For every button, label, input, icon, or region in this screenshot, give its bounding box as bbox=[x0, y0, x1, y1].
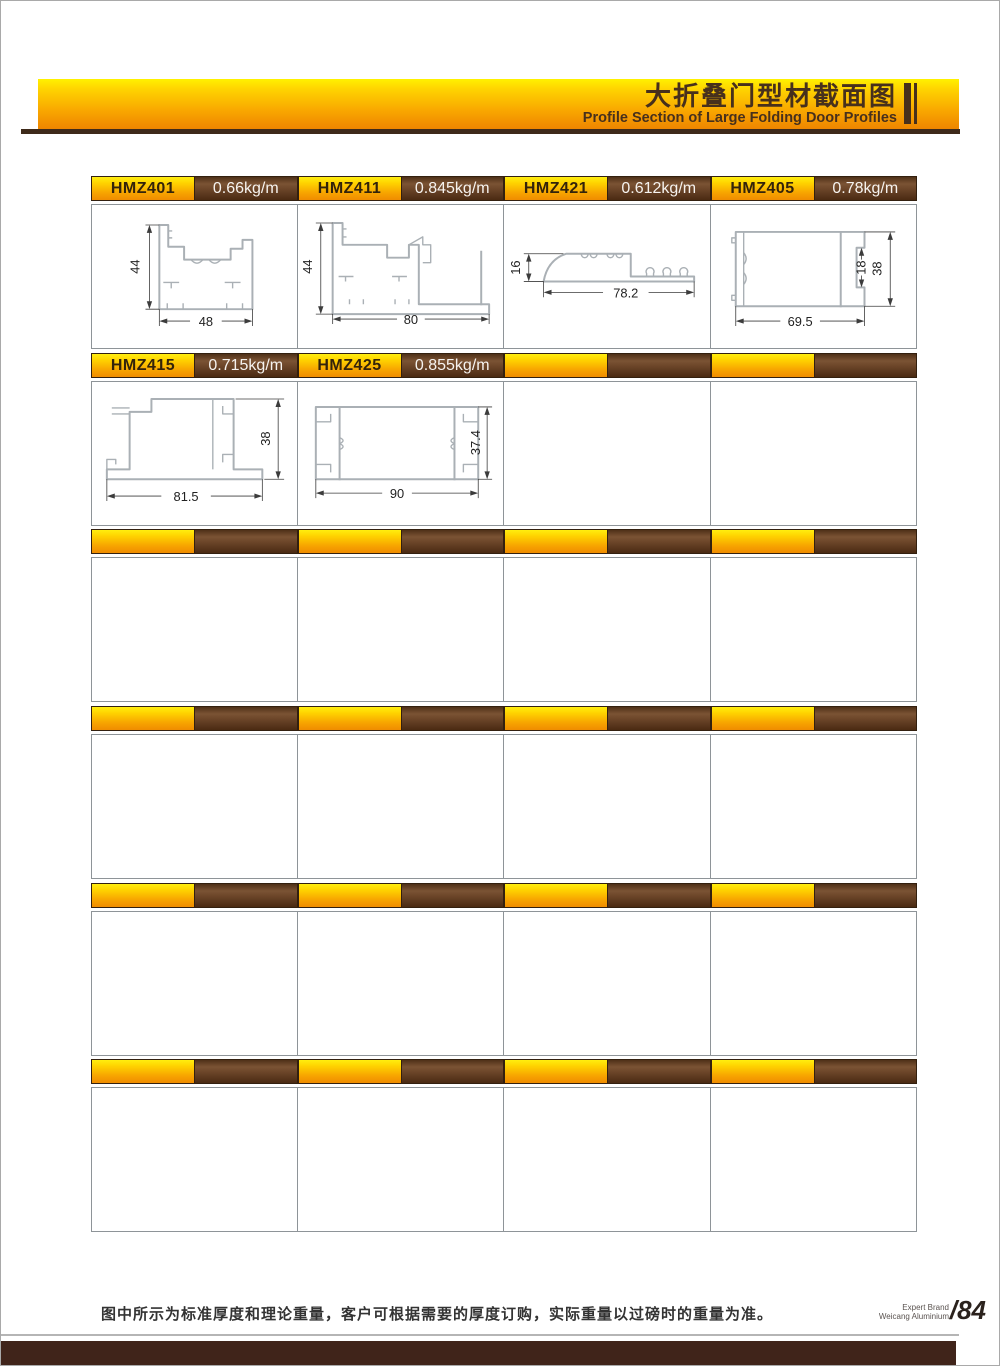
empty-gold-block bbox=[711, 353, 814, 378]
empty-label-cell bbox=[91, 883, 298, 908]
empty-gold-block bbox=[504, 883, 607, 908]
empty-gold-block bbox=[711, 529, 814, 554]
model-badge: HMZ411 bbox=[298, 176, 401, 201]
dim-width: 78.2 bbox=[613, 285, 638, 300]
profile-label-hmz421: HMZ421 0.612kg/m bbox=[504, 176, 711, 201]
empty-cell bbox=[504, 557, 711, 702]
empty-label-cell bbox=[504, 353, 711, 378]
weight-badge: 0.78kg/m bbox=[814, 176, 918, 201]
empty-label-cell bbox=[298, 706, 505, 731]
header-titles: 大折叠门型材截面图 Profile Section of Large Foldi… bbox=[583, 82, 897, 127]
dim-width: 48 bbox=[199, 314, 213, 329]
dim-width: 81.5 bbox=[174, 489, 199, 504]
empty-gold-block bbox=[91, 1059, 194, 1084]
empty-label-cell bbox=[711, 706, 918, 731]
empty-label-cell bbox=[711, 529, 918, 554]
weight-badge: 0.66kg/m bbox=[194, 176, 298, 201]
empty-cell bbox=[504, 381, 711, 526]
dim-slot: 18 bbox=[853, 260, 868, 274]
weight-badge: 0.715kg/m bbox=[194, 353, 298, 378]
model-badge: HMZ415 bbox=[91, 353, 194, 378]
model-badge: HMZ405 bbox=[711, 176, 814, 201]
model-badge: HMZ425 bbox=[298, 353, 401, 378]
empty-gold-block bbox=[298, 883, 401, 908]
empty-gold-block bbox=[711, 1059, 814, 1084]
empty-cell bbox=[298, 911, 505, 1056]
empty-brown-block bbox=[607, 883, 711, 908]
empty-gold-block bbox=[91, 529, 194, 554]
empty-label-cell bbox=[504, 883, 711, 908]
weight-badge: 0.855kg/m bbox=[401, 353, 505, 378]
footer-note: 图中所示为标准厚度和理论重量，客户可根据需要的厚度订购，实际重量以过磅时的重量为… bbox=[101, 1303, 773, 1324]
divider-bar bbox=[91, 706, 917, 731]
empty-label-cell bbox=[91, 529, 298, 554]
empty-label-cell bbox=[711, 1059, 918, 1084]
header-underline bbox=[21, 129, 960, 134]
header-accent-bar-thin bbox=[914, 83, 917, 124]
empty-cell bbox=[711, 381, 918, 526]
profile-drawing-hmz401: 44 48 bbox=[91, 204, 298, 349]
footer-bar bbox=[1, 1341, 956, 1365]
empty-gold-block bbox=[504, 529, 607, 554]
empty-cell bbox=[91, 911, 298, 1056]
empty-cell bbox=[711, 734, 918, 879]
empty-cell bbox=[298, 734, 505, 879]
footer-rule bbox=[1, 1334, 959, 1336]
profile-label-hmz415: HMZ415 0.715kg/m bbox=[91, 353, 298, 378]
empty-cell bbox=[298, 1087, 505, 1232]
empty-label-cell bbox=[504, 1059, 711, 1084]
empty-cell bbox=[711, 1087, 918, 1232]
divider-bar bbox=[91, 529, 917, 554]
empty-row bbox=[91, 734, 917, 879]
empty-brown-block bbox=[814, 353, 918, 378]
empty-brown-block bbox=[814, 1059, 918, 1084]
model-badge: HMZ401 bbox=[91, 176, 194, 201]
page-number: /84 bbox=[950, 1295, 986, 1326]
empty-brown-block bbox=[194, 706, 298, 731]
profile-drawing-hmz405: 18 38 69.5 bbox=[711, 204, 918, 349]
empty-brown-block bbox=[194, 529, 298, 554]
empty-label-cell bbox=[504, 706, 711, 731]
empty-brown-block bbox=[814, 706, 918, 731]
dim-height: 37.4 bbox=[468, 430, 483, 455]
profile-drawing-hmz421: 16 78.2 bbox=[504, 204, 711, 349]
dim-height: 44 bbox=[128, 259, 143, 273]
empty-gold-block bbox=[298, 1059, 401, 1084]
empty-brown-block bbox=[607, 706, 711, 731]
empty-brown-block bbox=[401, 883, 505, 908]
dim-height: 44 bbox=[299, 259, 314, 273]
empty-cell bbox=[91, 557, 298, 702]
label-row-2: HMZ415 0.715kg/m HMZ425 0.855kg/m bbox=[91, 353, 917, 378]
empty-cell bbox=[91, 1087, 298, 1232]
empty-label-cell bbox=[711, 883, 918, 908]
page-title: 大折叠门型材截面图 bbox=[583, 82, 897, 110]
drawing-row-1: 44 48 44 80 bbox=[91, 204, 917, 349]
empty-row bbox=[91, 1087, 917, 1232]
empty-brown-block bbox=[607, 529, 711, 554]
empty-gold-block bbox=[91, 706, 194, 731]
brand-line-1: Expert Brand bbox=[879, 1303, 949, 1312]
divider-bar bbox=[91, 1059, 917, 1084]
weight-badge: 0.845kg/m bbox=[401, 176, 505, 201]
empty-label-cell bbox=[298, 529, 505, 554]
section-drawing: 44 48 bbox=[92, 205, 296, 348]
section-drawing: 16 78.2 bbox=[504, 205, 708, 348]
empty-row bbox=[91, 911, 917, 1056]
dim-height: 38 bbox=[258, 431, 273, 445]
empty-cell bbox=[91, 734, 298, 879]
page-header: 大折叠门型材截面图 Profile Section of Large Foldi… bbox=[38, 79, 959, 129]
dim-width: 80 bbox=[403, 312, 417, 327]
empty-cell bbox=[711, 911, 918, 1056]
empty-brown-block bbox=[401, 529, 505, 554]
profile-drawing-hmz411: 44 80 bbox=[298, 204, 505, 349]
empty-brown-block bbox=[814, 883, 918, 908]
profile-label-hmz425: HMZ425 0.855kg/m bbox=[298, 353, 505, 378]
empty-gold-block bbox=[298, 529, 401, 554]
empty-gold-block bbox=[711, 883, 814, 908]
empty-label-cell bbox=[91, 1059, 298, 1084]
dim-height: 16 bbox=[508, 260, 523, 274]
brand-lines: Expert Brand Weicang Aluminium bbox=[879, 1303, 949, 1321]
empty-row bbox=[91, 557, 917, 702]
section-drawing: 37.4 90 bbox=[298, 382, 502, 525]
empty-brown-block bbox=[194, 1059, 298, 1084]
label-row-1: HMZ401 0.66kg/m HMZ411 0.845kg/m HMZ421 … bbox=[91, 176, 917, 201]
empty-gold-block bbox=[711, 706, 814, 731]
empty-cell bbox=[504, 1087, 711, 1232]
empty-brown-block bbox=[194, 883, 298, 908]
dim-height: 38 bbox=[869, 261, 884, 275]
weight-badge: 0.612kg/m bbox=[607, 176, 711, 201]
profile-drawing-hmz415: 38 81.5 bbox=[91, 381, 298, 526]
empty-label-cell bbox=[298, 883, 505, 908]
empty-gold-block bbox=[504, 353, 607, 378]
empty-brown-block bbox=[607, 353, 711, 378]
empty-gold-block bbox=[91, 883, 194, 908]
empty-cell bbox=[504, 734, 711, 879]
profile-label-hmz405: HMZ405 0.78kg/m bbox=[711, 176, 918, 201]
catalog-page: 大折叠门型材截面图 Profile Section of Large Foldi… bbox=[0, 0, 1000, 1366]
brand-line-2: Weicang Aluminium bbox=[879, 1312, 949, 1321]
empty-gold-block bbox=[298, 706, 401, 731]
empty-cell bbox=[711, 557, 918, 702]
section-drawing: 44 80 bbox=[298, 205, 502, 348]
profile-drawing-hmz425: 37.4 90 bbox=[298, 381, 505, 526]
empty-brown-block bbox=[401, 1059, 505, 1084]
empty-gold-block bbox=[504, 706, 607, 731]
model-badge: HMZ421 bbox=[504, 176, 607, 201]
empty-brown-block bbox=[607, 1059, 711, 1084]
empty-label-cell bbox=[298, 1059, 505, 1084]
dim-width: 69.5 bbox=[787, 314, 812, 329]
empty-cell bbox=[504, 911, 711, 1056]
empty-label-cell bbox=[711, 353, 918, 378]
empty-brown-block bbox=[401, 706, 505, 731]
empty-label-cell bbox=[504, 529, 711, 554]
empty-label-cell bbox=[91, 706, 298, 731]
section-drawing: 18 38 69.5 bbox=[711, 205, 915, 348]
section-drawing: 38 81.5 bbox=[92, 382, 296, 525]
empty-brown-block bbox=[814, 529, 918, 554]
header-accent-bar-thick bbox=[904, 83, 911, 124]
profile-label-hmz401: HMZ401 0.66kg/m bbox=[91, 176, 298, 201]
dim-width: 90 bbox=[389, 486, 403, 501]
empty-gold-block bbox=[504, 1059, 607, 1084]
profile-label-hmz411: HMZ411 0.845kg/m bbox=[298, 176, 505, 201]
drawing-row-2: 38 81.5 37.4 90 bbox=[91, 381, 917, 526]
empty-cell bbox=[298, 557, 505, 702]
page-subtitle: Profile Section of Large Folding Door Pr… bbox=[583, 110, 897, 127]
divider-bar bbox=[91, 883, 917, 908]
